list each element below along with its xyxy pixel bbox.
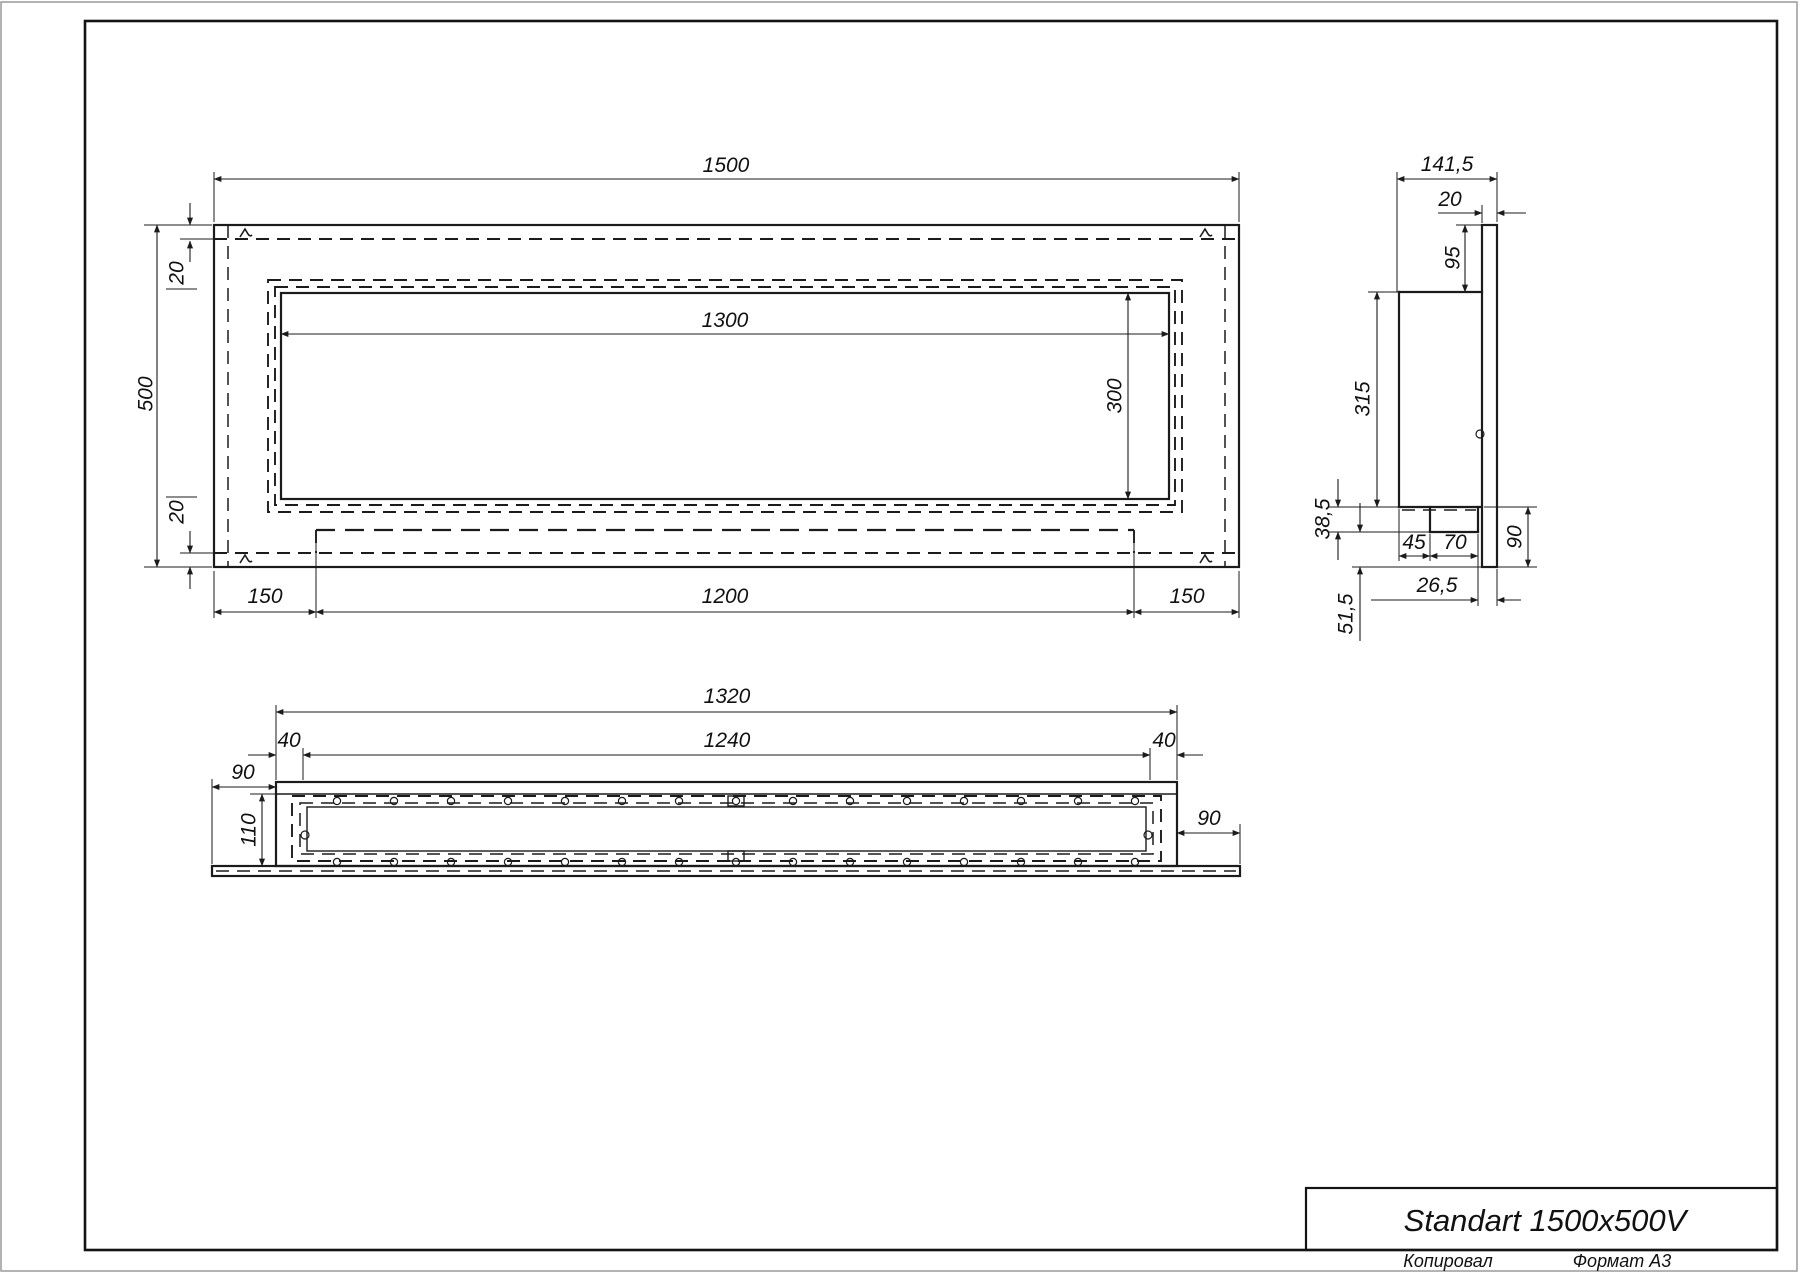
dim-label-bottom-left-40: 40 xyxy=(277,729,301,752)
dim-label-side-depth: 141,5 xyxy=(1421,153,1474,176)
bottom-hidden-lines xyxy=(292,796,1161,861)
drawing-sheet: 1500205001300300201501200150141,52095315… xyxy=(0,0,1800,1273)
dim-label-opening-height: 300 xyxy=(1103,378,1126,413)
dim-label-front-bottom-1200: 1200 xyxy=(702,585,749,608)
bottom-hole xyxy=(846,858,853,865)
dim-label-front-height: 500 xyxy=(134,376,157,411)
dim-label-side-26-5: 26,5 xyxy=(1416,574,1458,597)
bottom-left-hole xyxy=(301,831,309,839)
bottom-hole xyxy=(333,797,340,804)
bottom-right-hole xyxy=(1144,831,1152,839)
dim-label-side-70: 70 xyxy=(1443,531,1467,554)
bottom-hole xyxy=(618,858,625,865)
dim-label-side-body-315: 315 xyxy=(1351,381,1374,416)
bottom-hole xyxy=(1131,797,1138,804)
dim-label-bottom-right-90: 90 xyxy=(1197,807,1221,830)
bottom-hole xyxy=(1131,858,1138,865)
bottom-hole xyxy=(333,858,340,865)
bottom-hole xyxy=(504,858,511,865)
bottom-hole xyxy=(504,797,511,804)
format-label: Формат A3 xyxy=(1573,1251,1672,1271)
dim-label-front-top-offset: 20 xyxy=(165,261,188,286)
dim-label-bottom-1320: 1320 xyxy=(704,685,751,708)
copied-label: Копировал xyxy=(1403,1251,1493,1271)
dim-label-front-left-150: 150 xyxy=(247,585,282,608)
dim-label-bottom-110: 110 xyxy=(237,813,260,847)
dim-label-side-panel-20: 20 xyxy=(1437,188,1462,211)
bottom-hole xyxy=(789,858,796,865)
bottom-hole xyxy=(447,858,454,865)
drawing-canvas: 1500205001300300201501200150141,52095315… xyxy=(0,0,1800,1273)
bottom-hole xyxy=(675,858,682,865)
dim-label-front-bottom-offset: 20 xyxy=(165,500,188,525)
front-hidden-lines xyxy=(214,225,1239,567)
bottom-hole xyxy=(1074,858,1081,865)
paper-edge xyxy=(1,2,1797,1271)
dim-label-side-45: 45 xyxy=(1402,531,1426,554)
dim-label-front-right-150: 150 xyxy=(1169,585,1204,608)
title-block: Standart 1500x500V Копировал Формат A3 xyxy=(1306,1188,1777,1271)
dim-label-front-width: 1500 xyxy=(703,154,750,177)
front-outer-rect xyxy=(214,225,1239,567)
drawing-frame xyxy=(85,21,1777,1250)
bottom-hole xyxy=(1017,858,1024,865)
dim-label-side-right-90: 90 xyxy=(1503,525,1526,549)
dim-label-opening-width: 1300 xyxy=(702,309,749,332)
front-view xyxy=(144,172,1239,618)
bottom-hole xyxy=(732,858,739,865)
bottom-hole xyxy=(960,858,967,865)
dim-label-bottom-right-40: 40 xyxy=(1152,729,1176,752)
dim-label-side-top-95: 95 xyxy=(1441,246,1464,270)
front-dimension-lines xyxy=(157,179,1239,612)
dim-label-bottom-1240: 1240 xyxy=(704,729,751,752)
drawing-title: Standart 1500x500V xyxy=(1404,1203,1690,1238)
dim-label-side-38-5: 38,5 xyxy=(1311,498,1334,539)
bottom-hole xyxy=(903,797,910,804)
bottom-hole xyxy=(390,858,397,865)
bottom-hole xyxy=(903,858,910,865)
bottom-hole xyxy=(732,797,739,804)
bottom-hole xyxy=(561,858,568,865)
side-front-panel xyxy=(1482,225,1497,567)
side-body-outline xyxy=(1399,292,1484,532)
dim-label-side-51-5: 51,5 xyxy=(1334,593,1357,634)
dim-label-bottom-left-90: 90 xyxy=(231,761,255,784)
